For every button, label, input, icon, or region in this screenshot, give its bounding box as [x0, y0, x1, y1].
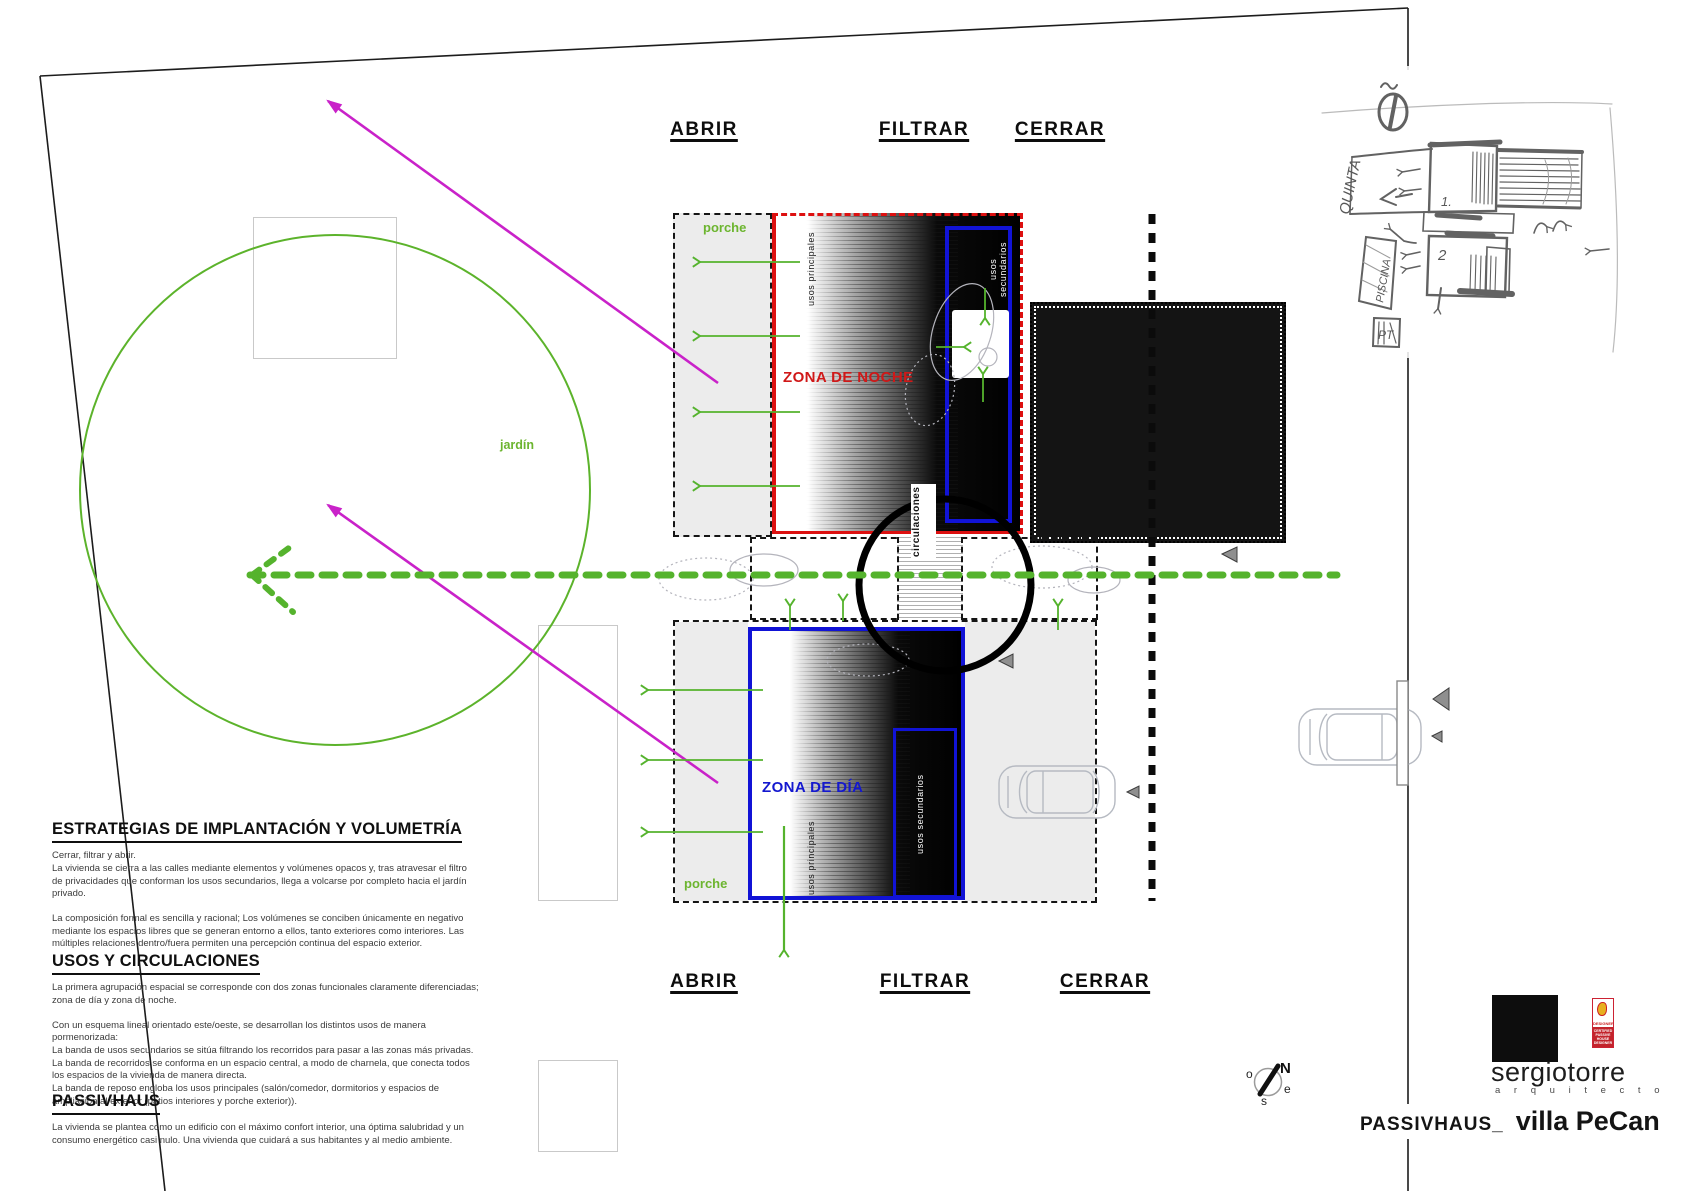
- compass: N o e s: [1246, 1060, 1291, 1108]
- parking-car: [999, 766, 1115, 818]
- porche-label-south: porche: [684, 876, 727, 891]
- studio-subtitle: a r q u i t e c t o: [1495, 1085, 1665, 1096]
- opening-arrows: [648, 262, 1058, 950]
- day-zone-label: ZONA DE DÍA: [762, 779, 863, 796]
- studio-logo-square: [1492, 995, 1558, 1062]
- strategy-cerrar-bottom: CERRAR: [1059, 971, 1151, 993]
- usos-secundarios-south: usos secundarios: [915, 770, 925, 858]
- view-arrow-south: [328, 505, 718, 783]
- paragraph: La banda de recorridos se conforma en un…: [52, 1058, 480, 1083]
- paragraph: La primera agrupación espacial se corres…: [52, 982, 480, 1007]
- text-block-passivhaus: PASSIVHAUS La vivienda se plantea como u…: [52, 1090, 480, 1148]
- strategy-filtrar-bottom: FILTRAR: [879, 971, 971, 993]
- entrance-gate: [1397, 681, 1408, 785]
- compass-north-label: N: [1280, 1060, 1291, 1077]
- night-zone-label: ZONA DE NOCHE: [783, 369, 913, 386]
- circulaciones-label: circulaciones: [911, 484, 936, 560]
- project-title-row: PASSIVHAUS_ villa PeCan: [1356, 1104, 1664, 1139]
- badge-flame-icon: [1597, 1002, 1607, 1016]
- jardin-label: jardín: [500, 438, 534, 452]
- badge-top: DESIGNER: [1593, 999, 1613, 1027]
- compass-south-label: s: [1261, 1094, 1267, 1108]
- usos-principales-north: usos principales: [806, 230, 816, 308]
- text-block-usos: USOS Y CIRCULACIONES La primera agrupaci…: [52, 950, 480, 1109]
- badge-bottom: CERTIFIED PASSIVE HOUSE DESIGNER: [1593, 1027, 1613, 1047]
- text-block-estrategias: ESTRATEGIAS DE IMPLANTACIÓN Y VOLUMETRÍA…: [52, 818, 480, 951]
- strategy-abrir-bottom: ABRIR: [662, 971, 746, 993]
- concept-sketch: QUINTA PISCINA PT 1. 2: [1322, 66, 1626, 358]
- paragraph: La banda de usos secundarios se sitúa fi…: [52, 1045, 480, 1058]
- compass-west-label: o: [1246, 1067, 1253, 1081]
- porche-label-north: porche: [703, 220, 746, 235]
- text-block-heading: PASSIVHAUS: [52, 1090, 160, 1115]
- paragraph: Con un esquema lineal orientado este/oes…: [52, 1020, 480, 1045]
- poster-canvas: N o e s: [0, 0, 1684, 1191]
- project-name: villa PeCan: [1516, 1106, 1660, 1137]
- passivhaus-certification-badge: DESIGNER CERTIFIED PASSIVE HOUSE DESIGNE…: [1592, 998, 1614, 1048]
- paragraph: La vivienda se plantea como un edificio …: [52, 1122, 480, 1147]
- strategy-cerrar-top: CERRAR: [1014, 119, 1106, 141]
- text-block-heading: USOS Y CIRCULACIONES: [52, 950, 260, 975]
- sketch-number-2: 2: [1437, 247, 1447, 264]
- usos-principales-south: usos principales: [806, 816, 816, 900]
- hinge-ring: [859, 499, 1031, 671]
- paragraph: La composición formal es sencilla y raci…: [52, 913, 480, 951]
- view-arrow-north: [328, 101, 718, 383]
- compass-east-label: e: [1284, 1082, 1291, 1096]
- sketch-word-pt: PT: [1378, 328, 1395, 342]
- paragraph: Cerrar, filtrar y abrir.: [52, 850, 480, 863]
- strategy-abrir-top: ABRIR: [662, 119, 746, 141]
- text-block-heading: ESTRATEGIAS DE IMPLANTACIÓN Y VOLUMETRÍA: [52, 818, 462, 843]
- studio-name: sergiotorre: [1491, 1057, 1626, 1088]
- usos-secundarios-north: usos secundarios: [988, 230, 1008, 308]
- paragraph: La vivienda se cierra a las calles media…: [52, 863, 480, 901]
- sketch-number-1: 1.: [1441, 194, 1452, 209]
- project-prefix: PASSIVHAUS_: [1360, 1114, 1504, 1136]
- garden-circle: [80, 235, 590, 745]
- strategy-filtrar-top: FILTRAR: [878, 119, 970, 141]
